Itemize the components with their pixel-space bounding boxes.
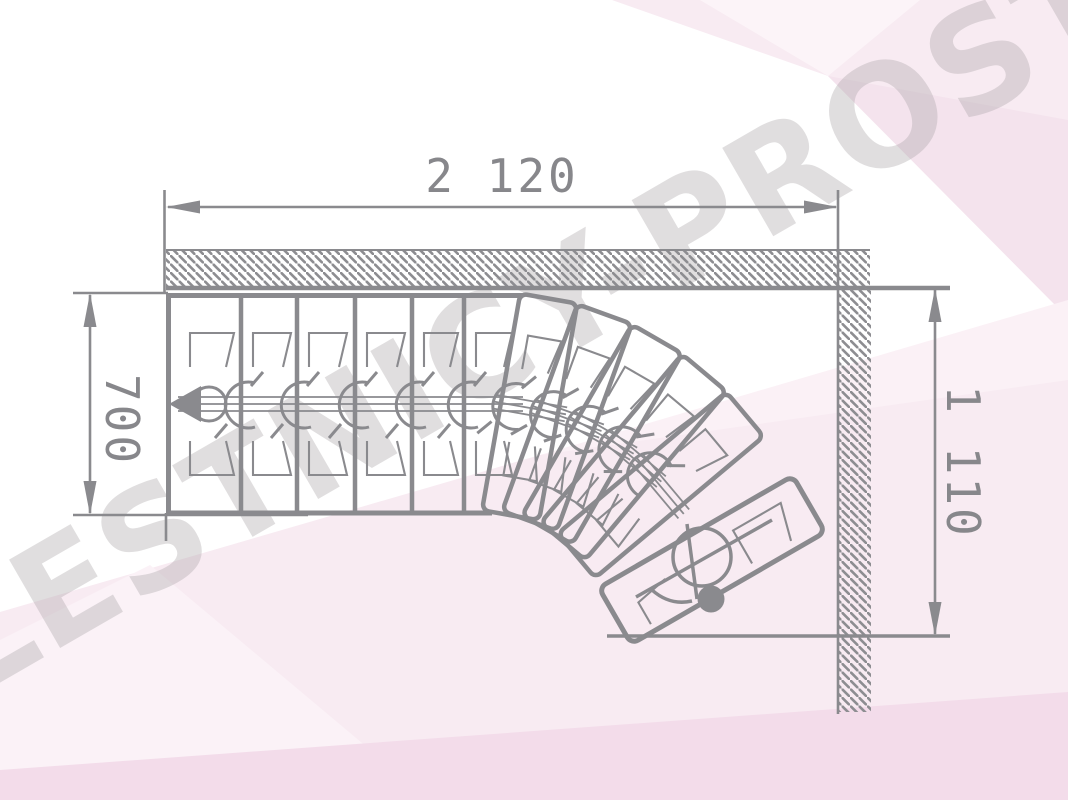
arrowhead-up	[84, 293, 97, 327]
arrowhead-left	[166, 201, 200, 214]
wall-top	[166, 250, 950, 288]
pole-anchor-dot	[698, 586, 725, 613]
arrowhead-up	[929, 288, 942, 322]
dimension-label-top: 2 120	[425, 149, 578, 203]
dimension-label-left: 700	[95, 374, 149, 466]
dimension-label-right: 1 110	[936, 385, 990, 538]
stair-plan-drawing: LESTNICY-PROSTO.RU 2 120 700 1 110	[0, 0, 1068, 800]
walkline-arrow	[169, 386, 201, 422]
